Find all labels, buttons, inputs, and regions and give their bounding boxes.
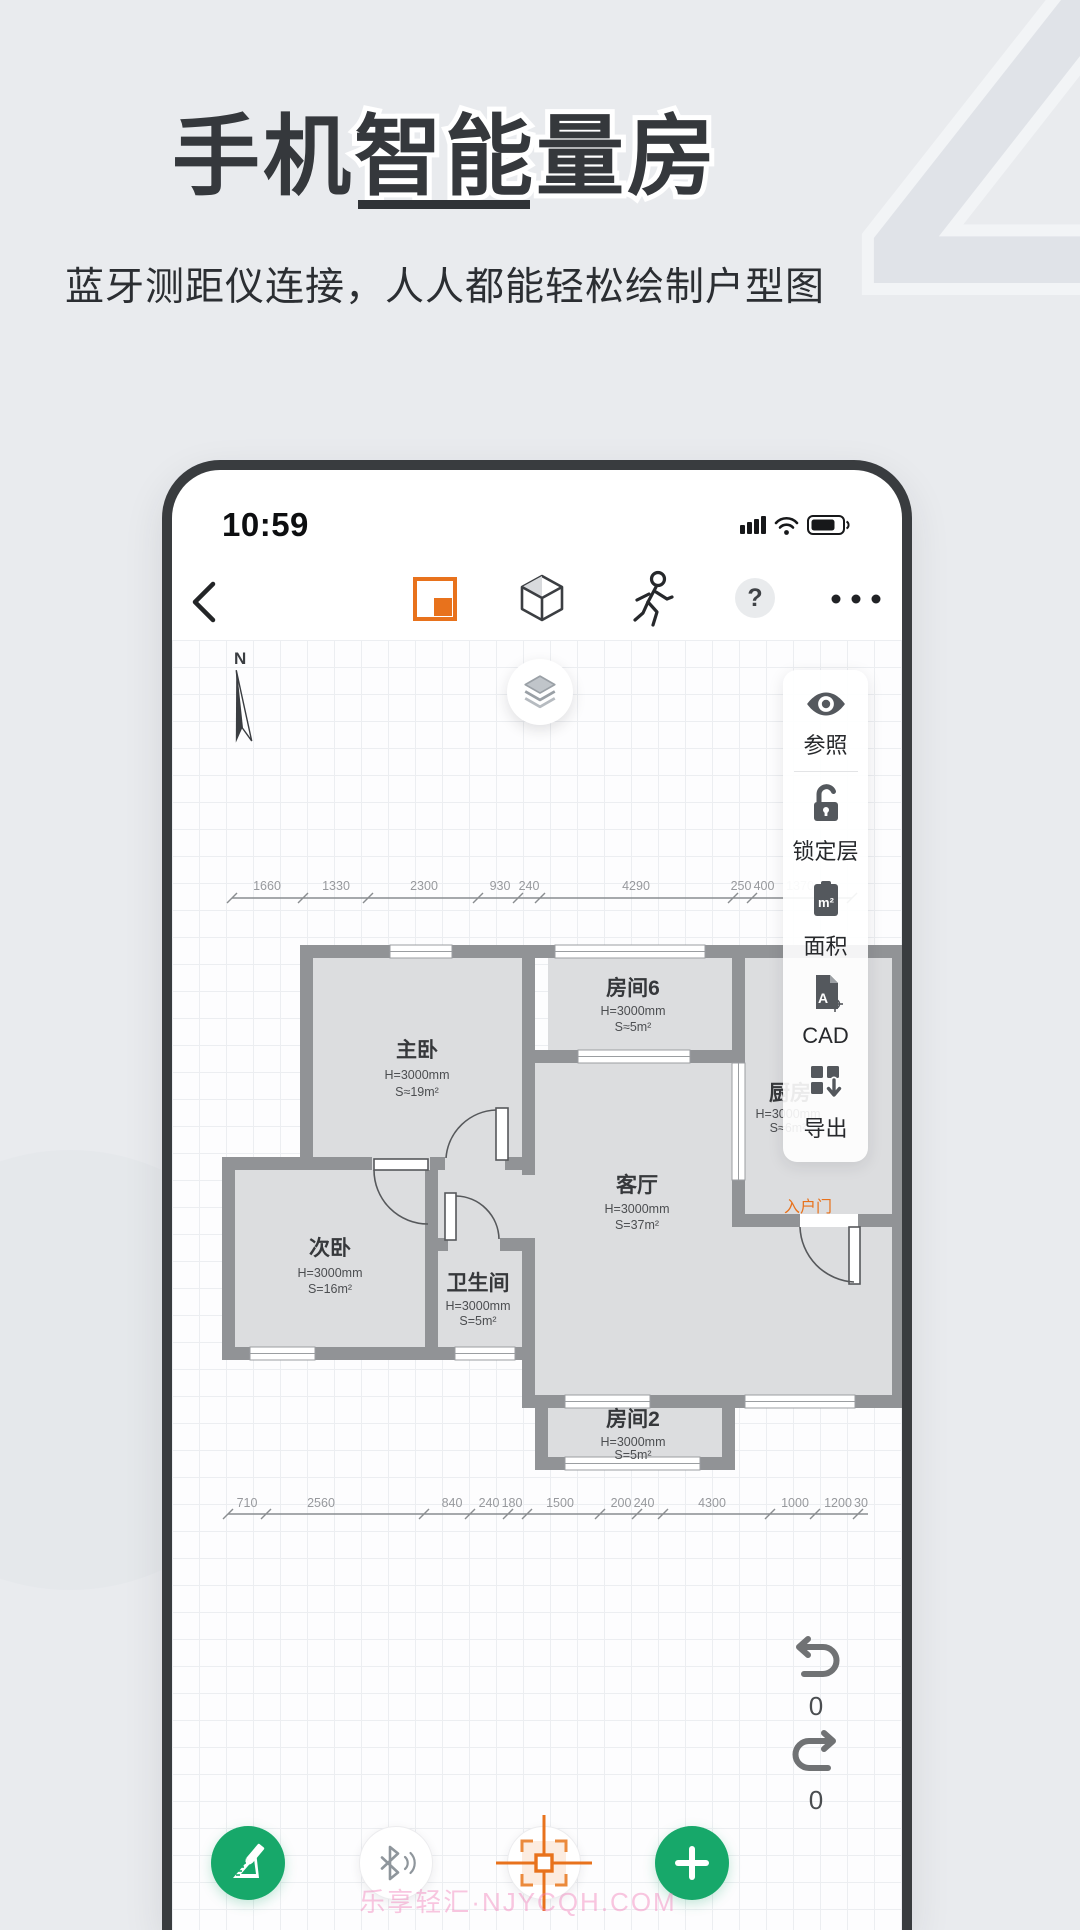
- svg-text:240: 240: [479, 1496, 500, 1510]
- undo-count: 0: [786, 1691, 846, 1722]
- svg-text:S=37m²: S=37m²: [615, 1218, 659, 1232]
- sidebar-item-reference[interactable]: 参照: [783, 689, 868, 760]
- undo-control: 0: [786, 1636, 846, 1722]
- hero-title-outlined: 智能量房: [354, 107, 718, 206]
- svg-text:H=3000mm: H=3000mm: [446, 1299, 511, 1313]
- svg-text:4300: 4300: [698, 1496, 726, 1510]
- redo-icon[interactable]: [790, 1730, 842, 1778]
- more-button[interactable]: [827, 591, 885, 607]
- eye-icon: [805, 689, 847, 719]
- lock-open-icon: [806, 783, 846, 825]
- svg-text:1660: 1660: [253, 879, 281, 893]
- floorplan-2d-button[interactable]: [412, 576, 458, 622]
- ruler-pencil-icon: [226, 1841, 270, 1885]
- room-label: 主卧: [396, 1039, 438, 1062]
- svg-text:710: 710: [237, 1496, 258, 1510]
- more-ellipsis-icon: [832, 595, 881, 604]
- svg-text:H=3000mm: H=3000mm: [601, 1004, 666, 1018]
- sidebar-item-lock-layer[interactable]: 锁定层: [783, 783, 868, 866]
- room-label: 卫生间: [447, 1271, 510, 1295]
- floorplan-2d-icon: [415, 579, 455, 619]
- svg-text:2300: 2300: [410, 879, 438, 893]
- export-down-icon: [805, 1060, 847, 1102]
- site-watermark: 乐享轻汇·NJYCQH.COM: [318, 1882, 718, 1919]
- svg-text:S=5m²: S=5m²: [614, 1448, 651, 1462]
- svg-text:180: 180: [502, 1496, 523, 1510]
- svg-text:H=3000mm: H=3000mm: [385, 1068, 450, 1082]
- svg-text:240: 240: [519, 879, 540, 893]
- help-button[interactable]: ?: [735, 578, 775, 618]
- svg-text:1200: 1200: [824, 1496, 852, 1510]
- svg-text:4290: 4290: [622, 879, 650, 893]
- chevron-left-icon: [195, 584, 213, 620]
- dimension-line-bottom: 710 2560 840 240 180 1500 200 240 4300 1…: [223, 1496, 868, 1519]
- room-label: 客厅: [616, 1173, 658, 1197]
- room-label: 次卧: [309, 1236, 351, 1260]
- sidebar-divider: [794, 771, 858, 772]
- tool-sidebar: 参照 锁定层 m² 面积: [783, 670, 868, 1162]
- sidebar-item-area[interactable]: m² 面积: [783, 878, 868, 961]
- svg-text:1000: 1000: [781, 1496, 809, 1510]
- help-label: ?: [747, 584, 762, 613]
- svg-text:H=3000mm: H=3000mm: [298, 1266, 363, 1280]
- view-3d-button[interactable]: [517, 573, 567, 623]
- floorplan-canvas[interactable]: N: [172, 640, 902, 1930]
- svg-text:A: A: [817, 990, 827, 1006]
- status-time: 10:59: [222, 506, 309, 544]
- svg-text:840: 840: [442, 1496, 463, 1510]
- walk-roam-button[interactable]: [627, 570, 679, 628]
- hero-title: 手机智能量房: [0, 86, 890, 213]
- svg-text:S≈5m²: S≈5m²: [615, 1020, 652, 1034]
- signal-icon: [740, 516, 766, 534]
- bluetooth-icon: [373, 1843, 419, 1883]
- entry-door-label: 入户门: [784, 1198, 832, 1216]
- walking-person-icon: [635, 573, 672, 626]
- svg-text:1500: 1500: [546, 1496, 574, 1510]
- svg-text:1330: 1330: [322, 879, 350, 893]
- room-label: 房间6: [606, 976, 660, 1000]
- svg-text:m²: m²: [818, 895, 835, 910]
- hero-subtitle: 蓝牙测距仪连接，人人都能轻松绘制户型图: [0, 256, 890, 312]
- wifi-icon: [776, 518, 797, 535]
- cad-file-icon: A: [806, 972, 846, 1014]
- battery-icon: [808, 516, 849, 534]
- hero-title-solid: 手机: [172, 107, 354, 206]
- svg-text:S=5m²: S=5m²: [459, 1314, 496, 1328]
- svg-text:S≈19m²: S≈19m²: [395, 1085, 439, 1099]
- svg-text:2560: 2560: [307, 1496, 335, 1510]
- svg-text:400: 400: [754, 879, 775, 893]
- undo-icon[interactable]: [790, 1636, 842, 1684]
- area-m2-icon: m²: [806, 878, 846, 920]
- redo-count: 0: [786, 1785, 846, 1816]
- svg-text:H=3000mm: H=3000mm: [601, 1435, 666, 1449]
- svg-text:250: 250: [731, 879, 752, 893]
- phone-mockup: 10:59: [162, 460, 912, 1930]
- plus-icon: [672, 1843, 712, 1883]
- redo-control: 0: [786, 1730, 846, 1816]
- svg-text:H=3000mm: H=3000mm: [605, 1202, 670, 1216]
- dimension-line-top: 1660 1330 2300 930 240 4290 250 400 1370: [227, 879, 857, 903]
- svg-text:30: 30: [854, 1496, 868, 1510]
- sidebar-item-export[interactable]: 导出: [783, 1060, 868, 1143]
- sidebar-item-cad[interactable]: A CAD: [783, 972, 868, 1049]
- room-label: 房间2: [606, 1407, 660, 1431]
- cube-3d-icon: [522, 576, 562, 620]
- svg-text:930: 930: [490, 879, 511, 893]
- svg-text:240: 240: [634, 1496, 655, 1510]
- svg-text:200: 200: [611, 1496, 632, 1510]
- status-icons: [740, 512, 890, 540]
- back-button[interactable]: [188, 580, 220, 624]
- hero-underline: [358, 200, 530, 209]
- measure-tool-button[interactable]: [211, 1826, 285, 1900]
- svg-text:S=16m²: S=16m²: [308, 1282, 352, 1296]
